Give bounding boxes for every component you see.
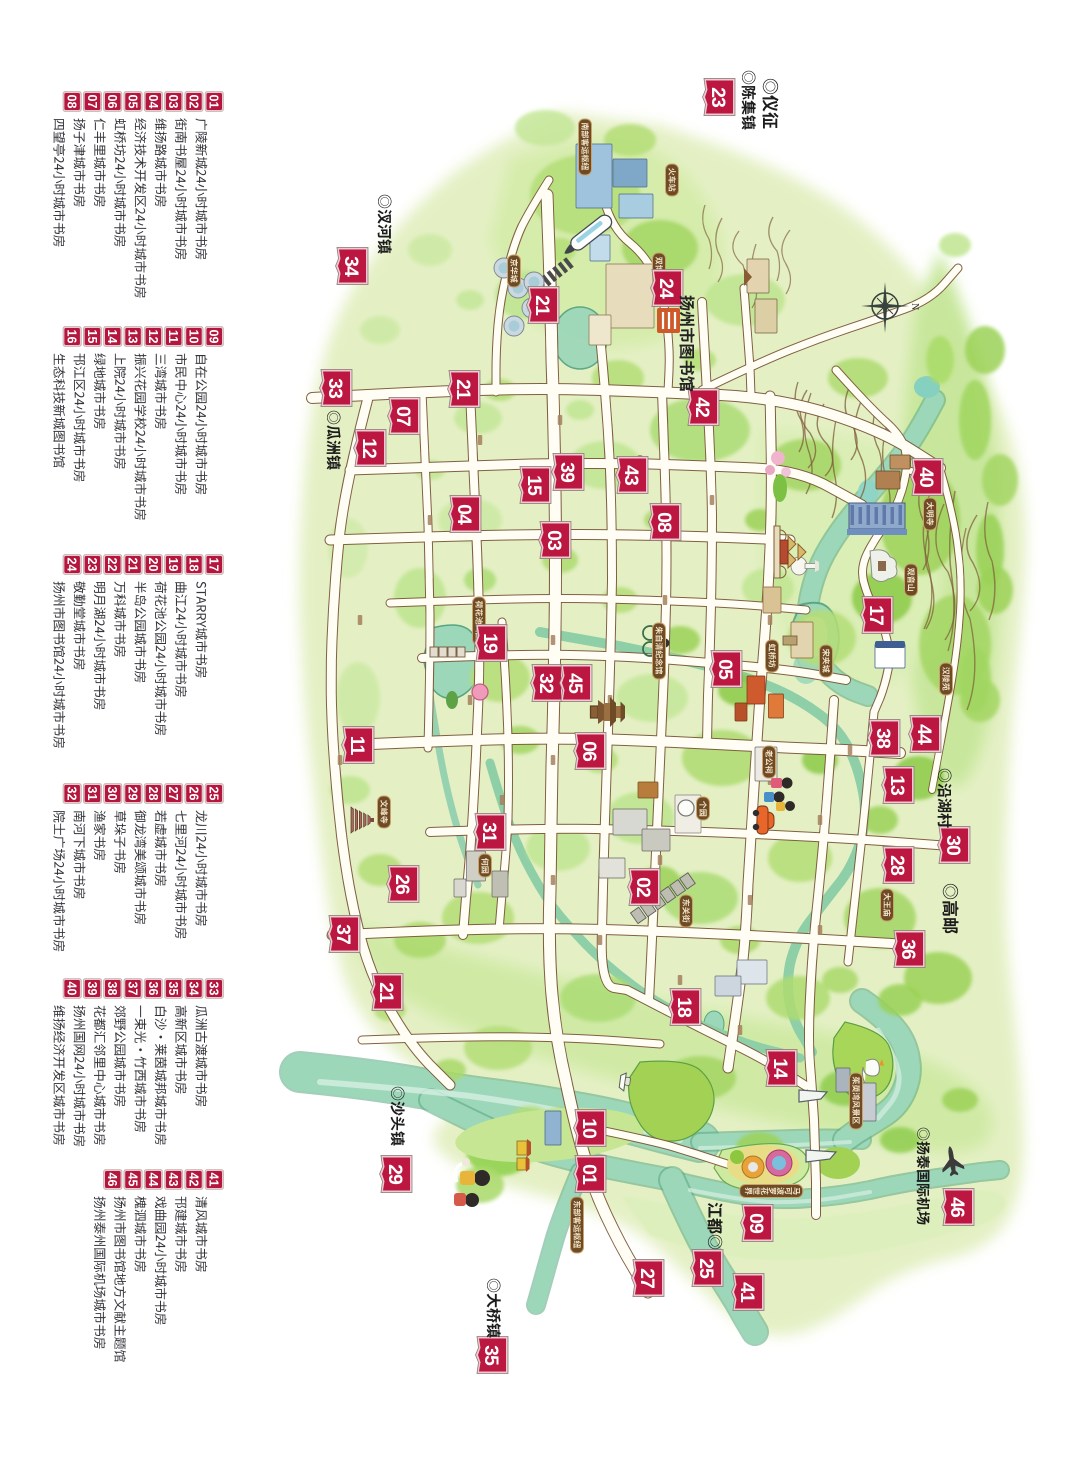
svg-text:06: 06: [578, 741, 600, 762]
svg-text:27: 27: [636, 1268, 658, 1288]
svg-text:N: N: [909, 303, 920, 310]
svg-text:30: 30: [105, 787, 119, 801]
svg-text:42: 42: [186, 1173, 200, 1187]
svg-text:29: 29: [125, 787, 139, 801]
svg-text:39: 39: [85, 982, 99, 996]
svg-text:46: 46: [946, 1197, 968, 1218]
svg-text:11: 11: [166, 330, 180, 343]
svg-text:41: 41: [207, 1173, 221, 1187]
svg-text:17: 17: [865, 605, 887, 625]
svg-text:45: 45: [125, 1173, 139, 1187]
svg-text:04: 04: [146, 95, 160, 109]
svg-text:36: 36: [146, 982, 160, 996]
svg-text:44: 44: [913, 724, 935, 745]
svg-text:02: 02: [186, 95, 200, 109]
svg-text:21: 21: [125, 558, 139, 572]
svg-text:46: 46: [105, 1173, 119, 1187]
svg-text:15: 15: [85, 330, 99, 344]
svg-text:37: 37: [125, 982, 139, 996]
svg-text:45: 45: [564, 673, 586, 694]
svg-text:23: 23: [85, 558, 99, 572]
svg-text:33: 33: [207, 982, 221, 996]
svg-text:04: 04: [453, 504, 475, 525]
svg-text:40: 40: [65, 982, 79, 996]
svg-text:13: 13: [125, 330, 139, 344]
svg-text:41: 41: [736, 1282, 758, 1303]
svg-text:16: 16: [65, 330, 79, 344]
svg-text:32: 32: [535, 673, 557, 694]
svg-text:08: 08: [653, 512, 675, 533]
svg-text:43: 43: [620, 465, 642, 486]
svg-text:02: 02: [632, 877, 654, 898]
svg-text:40: 40: [915, 467, 937, 488]
svg-text:13: 13: [886, 775, 908, 796]
svg-text:12: 12: [358, 438, 380, 459]
svg-text:28: 28: [146, 787, 160, 801]
svg-text:09: 09: [745, 1213, 767, 1234]
svg-text:08: 08: [65, 95, 79, 109]
svg-text:06: 06: [105, 95, 119, 109]
svg-text:23: 23: [707, 87, 729, 108]
svg-text:28: 28: [886, 855, 908, 876]
svg-text:21: 21: [452, 379, 474, 400]
svg-text:20: 20: [146, 558, 160, 572]
svg-text:25: 25: [695, 1258, 717, 1279]
svg-text:19: 19: [166, 558, 180, 572]
svg-text:10: 10: [578, 1118, 600, 1139]
svg-text:07: 07: [85, 95, 99, 109]
svg-text:24: 24: [65, 558, 79, 572]
svg-text:14: 14: [769, 1058, 791, 1079]
svg-text:30: 30: [942, 835, 964, 856]
svg-text:17: 17: [207, 558, 221, 572]
svg-text:18: 18: [186, 558, 200, 572]
svg-text:07: 07: [392, 406, 414, 426]
svg-text:24: 24: [655, 278, 677, 299]
svg-text:05: 05: [714, 659, 736, 680]
svg-text:21: 21: [375, 982, 397, 1003]
svg-text:21: 21: [531, 295, 553, 316]
svg-text:09: 09: [207, 330, 221, 344]
svg-text:35: 35: [480, 1345, 502, 1366]
svg-text:42: 42: [691, 397, 713, 418]
svg-text:33: 33: [324, 378, 346, 399]
svg-text:26: 26: [186, 787, 200, 801]
svg-text:11: 11: [346, 736, 368, 756]
svg-text:36: 36: [897, 939, 919, 960]
svg-text:27: 27: [166, 787, 180, 801]
svg-text:10: 10: [186, 330, 200, 344]
svg-text:01: 01: [207, 95, 221, 109]
svg-text:19: 19: [479, 633, 501, 654]
svg-text:25: 25: [207, 787, 221, 801]
svg-text:34: 34: [340, 256, 362, 277]
svg-text:31: 31: [85, 787, 99, 801]
svg-text:26: 26: [391, 874, 413, 895]
svg-text:03: 03: [543, 530, 565, 551]
svg-text:05: 05: [125, 95, 139, 109]
svg-text:14: 14: [105, 330, 119, 344]
svg-text:38: 38: [872, 728, 894, 749]
svg-text:34: 34: [186, 982, 200, 996]
svg-text:12: 12: [146, 330, 160, 344]
svg-text:22: 22: [105, 558, 119, 572]
svg-text:32: 32: [65, 787, 79, 801]
svg-text:39: 39: [556, 462, 578, 483]
svg-text:29: 29: [384, 1164, 406, 1185]
svg-text:43: 43: [166, 1173, 180, 1187]
svg-text:01: 01: [578, 1164, 600, 1185]
svg-text:44: 44: [146, 1173, 160, 1187]
svg-text:35: 35: [166, 982, 180, 996]
svg-text:18: 18: [673, 997, 695, 1018]
svg-text:15: 15: [523, 475, 545, 496]
svg-text:38: 38: [105, 982, 119, 996]
svg-text:37: 37: [332, 924, 354, 944]
svg-text:03: 03: [166, 95, 180, 109]
svg-text:31: 31: [478, 822, 500, 843]
